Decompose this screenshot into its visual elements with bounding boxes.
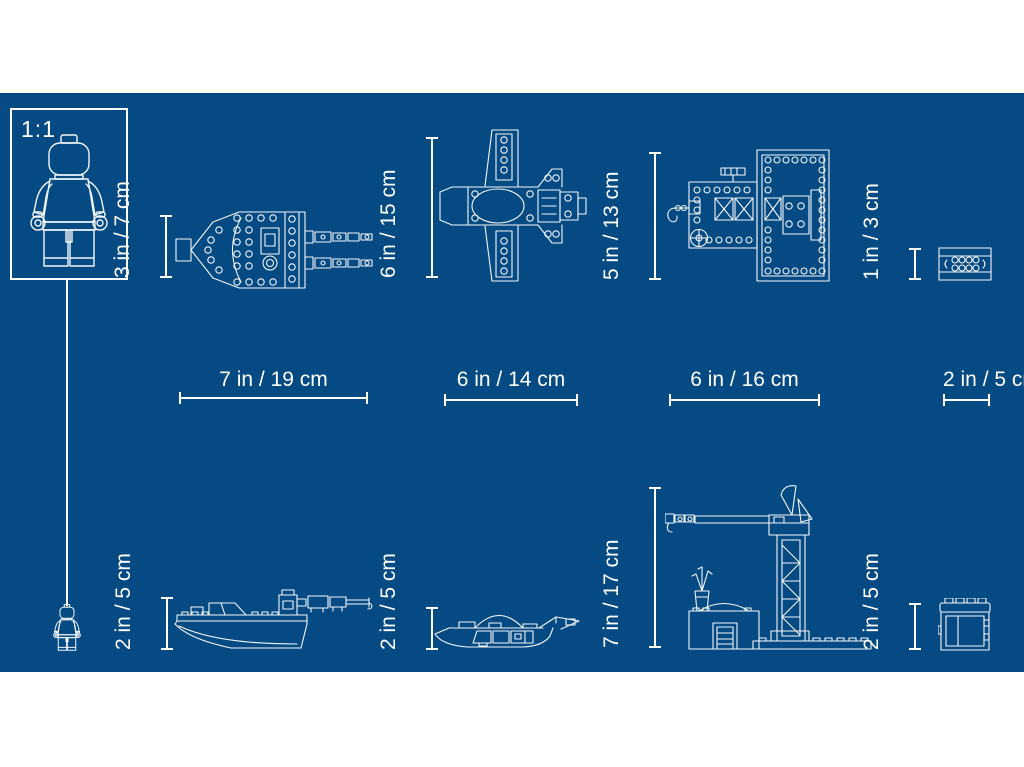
- dim-label-platform-top-height: 5 in / 13 cm: [599, 171, 625, 280]
- product-dimension-diagram: 1:1: [0, 0, 1024, 767]
- model-boat-side-view: [147, 563, 373, 652]
- model-container-side-view: [938, 598, 992, 652]
- model-boat-top-view: [175, 205, 375, 295]
- model-platform-top-view: [665, 148, 833, 283]
- dim-label-boat-top-width: 7 in / 19 cm: [179, 367, 368, 393]
- dim-label-plate-top-height: 1 in / 3 cm: [859, 183, 885, 280]
- dim-label-plate-top-width: 2 in / 5 cm: [943, 367, 990, 393]
- model-submarine-side-view: [433, 600, 581, 652]
- dim-line-platform-top-width: [669, 399, 820, 401]
- model-crane-tower-side-view: [665, 483, 875, 652]
- dim-line-crane-side-height: [654, 487, 656, 648]
- scale-connector-line: [66, 280, 68, 606]
- dim-line-boat-top-width: [179, 397, 368, 399]
- dim-label-crane-side-height: 7 in / 17 cm: [599, 539, 625, 648]
- dim-line-plate-top-width: [943, 399, 990, 401]
- dim-label-submarine-side-height: 2 in / 5 cm: [376, 553, 402, 650]
- dim-label-platform-top-width: 6 in / 16 cm: [669, 367, 820, 393]
- model-plate-top-view: [938, 247, 992, 281]
- minifigure-front-icon: [29, 134, 109, 274]
- dim-label-plane-top-width: 6 in / 14 cm: [444, 367, 578, 393]
- dim-line-plate-top-height: [914, 248, 916, 280]
- dim-line-boat-top-height: [165, 215, 167, 278]
- model-seaplane-top-view: [438, 128, 588, 283]
- dim-line-plane-top-width: [444, 399, 578, 401]
- dim-label-container-side-height: 2 in / 5 cm: [859, 553, 885, 650]
- dim-label-plane-top-height: 6 in / 15 cm: [376, 169, 402, 278]
- dim-label-boat-top-height: 3 in / 7 cm: [110, 181, 136, 278]
- minifigure-small-icon: [53, 604, 81, 653]
- dim-line-container-side-height: [914, 603, 916, 650]
- dim-line-plane-top-height: [431, 137, 433, 278]
- dim-label-boat-side-height: 2 in / 5 cm: [111, 553, 137, 650]
- dim-line-submarine-side-height: [431, 607, 433, 650]
- dim-line-platform-top-height: [654, 152, 656, 280]
- dim-line-boat-side-height: [166, 597, 168, 650]
